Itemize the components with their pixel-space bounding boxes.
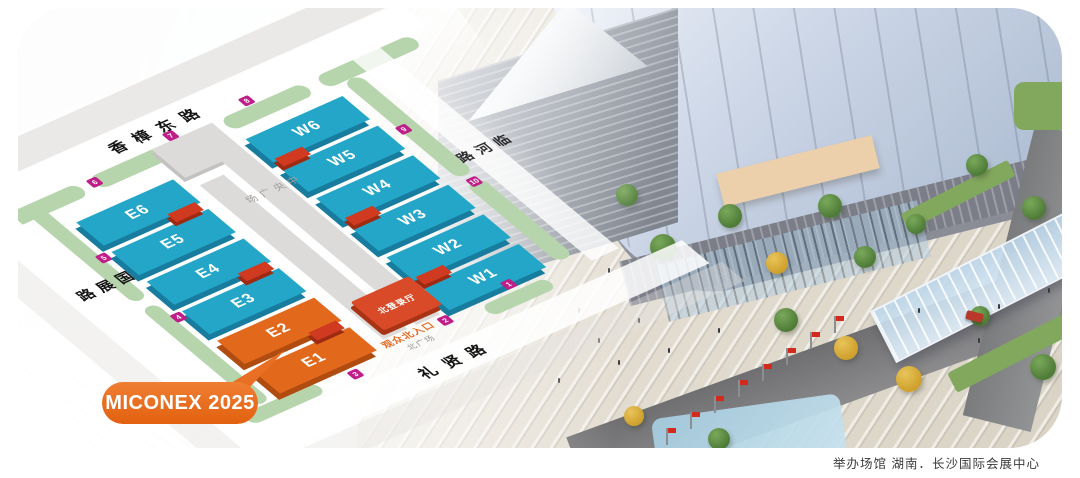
- hall-label: E1: [298, 350, 332, 370]
- hall-label: E2: [263, 321, 297, 341]
- hall-label: W6: [289, 118, 327, 140]
- hall-label: W3: [395, 207, 433, 229]
- hall-label: E5: [157, 232, 191, 252]
- registration-hall-label: 北登录厅: [373, 291, 420, 316]
- hall-label: W2: [430, 236, 468, 258]
- hall-label: W4: [360, 177, 398, 199]
- venue-card: E6 E5 E4 E3 E2 E1 W6 W5 W4 W3 W2 W1 北登录厅…: [18, 8, 1062, 448]
- event-label: MICONEX 2025: [105, 392, 254, 415]
- hall-label: E4: [192, 261, 226, 281]
- hall-label: E3: [227, 291, 261, 311]
- hall-label: W5: [324, 148, 362, 170]
- hall-label: W1: [465, 266, 503, 288]
- venue-caption: 举办场馆 湖南．长沙国际会展中心: [833, 453, 1040, 472]
- event-callout: MICONEX 2025: [102, 382, 258, 424]
- hall-label: E6: [122, 202, 156, 222]
